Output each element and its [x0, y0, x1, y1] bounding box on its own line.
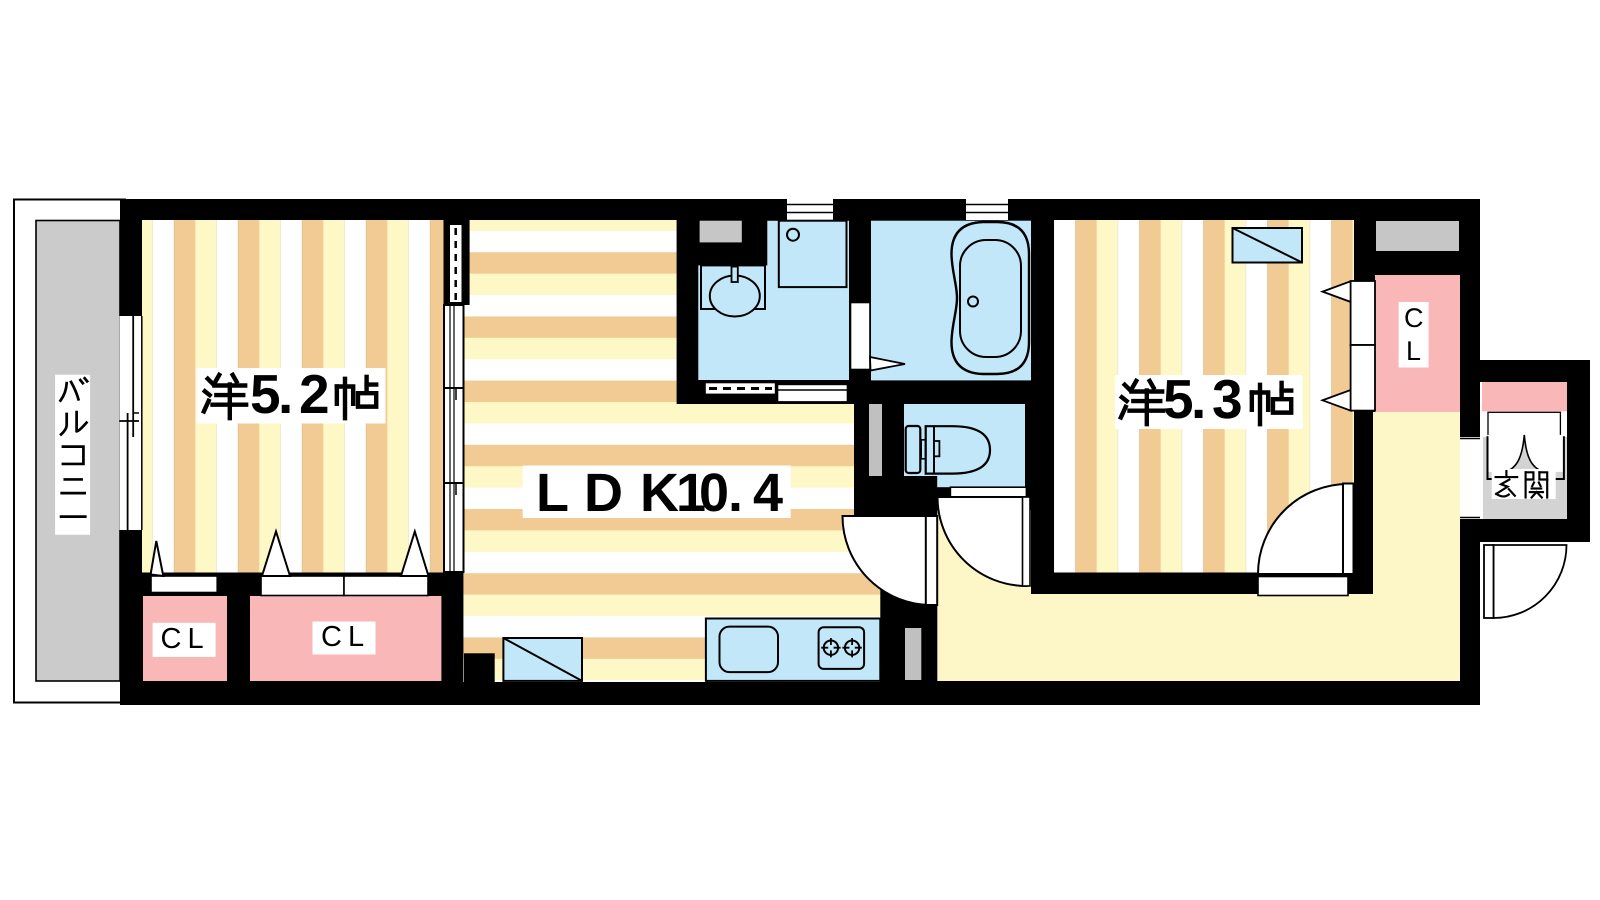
svg-text:L: L	[1406, 336, 1421, 366]
svg-text:LDK: LDK	[536, 463, 679, 523]
svg-text:CL: CL	[161, 623, 210, 655]
svg-text:CL: CL	[321, 621, 370, 653]
svg-text:5.3: 5.3	[1163, 368, 1243, 430]
svg-text:C: C	[1404, 303, 1424, 333]
svg-text:5.2: 5.2	[250, 363, 330, 425]
svg-text:10.4: 10.4	[676, 463, 783, 523]
